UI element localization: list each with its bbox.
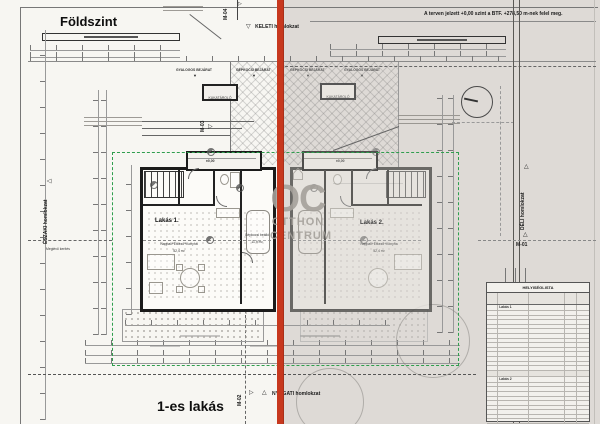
dimension-chain: [101, 90, 107, 335]
carport-label: Gépkocsi beálló: [241, 234, 273, 238]
plot-boundary-dashed: [28, 374, 476, 375]
dimension-chain: [30, 45, 180, 51]
red-divider-line: [277, 0, 284, 424]
annotation-smear: [163, 6, 203, 13]
benchmark-symbol: [207, 148, 215, 156]
unit1-name: Lakás 1.: [155, 218, 179, 224]
sheet-left-border: [20, 7, 21, 424]
room-list-table: HELYISÉGLISTA Lakás 1Lakás 2: [486, 282, 590, 422]
dimension-chain: [93, 90, 99, 335]
dimension-chain: [330, 44, 506, 50]
facade-marker-south-icon: △: [524, 164, 529, 170]
level-note: A terven jelzett +0,00 szint a BTF. +278…: [424, 12, 596, 18]
entrance-arrow-icon: ▼: [193, 74, 197, 78]
carport-area: 11,9 m²: [241, 241, 273, 245]
bin-store-label-2: KUKATÁROLÓ: [327, 95, 350, 99]
entrance-arrow-icon: ▼: [360, 74, 364, 78]
leader-line: [142, 135, 230, 136]
page-title: Földszint: [60, 14, 117, 29]
section-marker-m03: M-03: [201, 112, 207, 132]
unit2-room-label: Nappali+Étkező+Konyha: [346, 243, 412, 247]
section-marker-m01: M-01: [516, 243, 527, 249]
section-marker-m04: M-04: [224, 2, 230, 20]
fence-dashed-line: [28, 240, 112, 241]
floor-plan-sheet: Földszint A terven jelzett +0,00 szint a…: [0, 0, 600, 424]
level-mark-unit2: ±0,00: [336, 160, 344, 164]
bin-store-label-1: KUKATÁROLÓ: [209, 96, 232, 100]
level-mark-unit1: ±0,00: [206, 160, 214, 164]
table-leader: [505, 268, 506, 282]
sheet-right-edge: [594, 0, 595, 424]
benchmark-symbol: [236, 184, 244, 192]
top-right-line: [310, 21, 596, 22]
entrance-arrow-icon: ▼: [306, 74, 310, 78]
unit2-room-area: 52,4 m²: [346, 250, 412, 254]
benchmark-symbol: [150, 181, 158, 189]
table-leader: [515, 268, 516, 282]
facade-marker-east-icon: ▽: [246, 24, 251, 30]
sheet-top-border: [20, 7, 598, 8]
room-table-title: HELYISÉGLISTA: [487, 283, 589, 293]
section-flag-icon: ▷: [249, 390, 254, 396]
dimension-bar-right: [378, 36, 506, 44]
dimension-bar-left: [42, 33, 180, 41]
section-flag-icon: △: [523, 232, 528, 238]
facade-label-north: ÉSZAKI homlokzat: [44, 188, 50, 244]
facade-marker-west-icon: △: [262, 390, 267, 396]
plot-dashed-line: [500, 86, 501, 236]
facade-label-south: DÉLI homlokzat: [521, 172, 527, 230]
leader-line: [142, 121, 254, 122]
unit1-room-area: 52,4 m²: [146, 250, 212, 254]
entrance-arrow-icon: ▼: [252, 74, 256, 78]
table-leader: [525, 268, 526, 282]
section-flag-icon: ▷: [238, 2, 242, 7]
section-axis-m01: [478, 240, 596, 241]
benchmark-symbol: [372, 148, 380, 156]
plot-dashed-line: [452, 122, 514, 123]
leader-line: [142, 128, 242, 129]
apartment-label: 1-es lakás: [157, 398, 224, 414]
facade-marker-north-icon: ▽: [45, 179, 51, 184]
section-flag-icon: ▷: [208, 124, 213, 130]
unit2-name: Lakás 2.: [360, 220, 384, 226]
fence-annotation: Meglévő kerítés: [46, 248, 70, 252]
section-marker-m02: M-02: [238, 386, 244, 406]
room-table-body: Lakás 1Lakás 2: [487, 293, 589, 424]
unit1-room-label: Nappali+Étkező+Konyha: [146, 243, 212, 247]
